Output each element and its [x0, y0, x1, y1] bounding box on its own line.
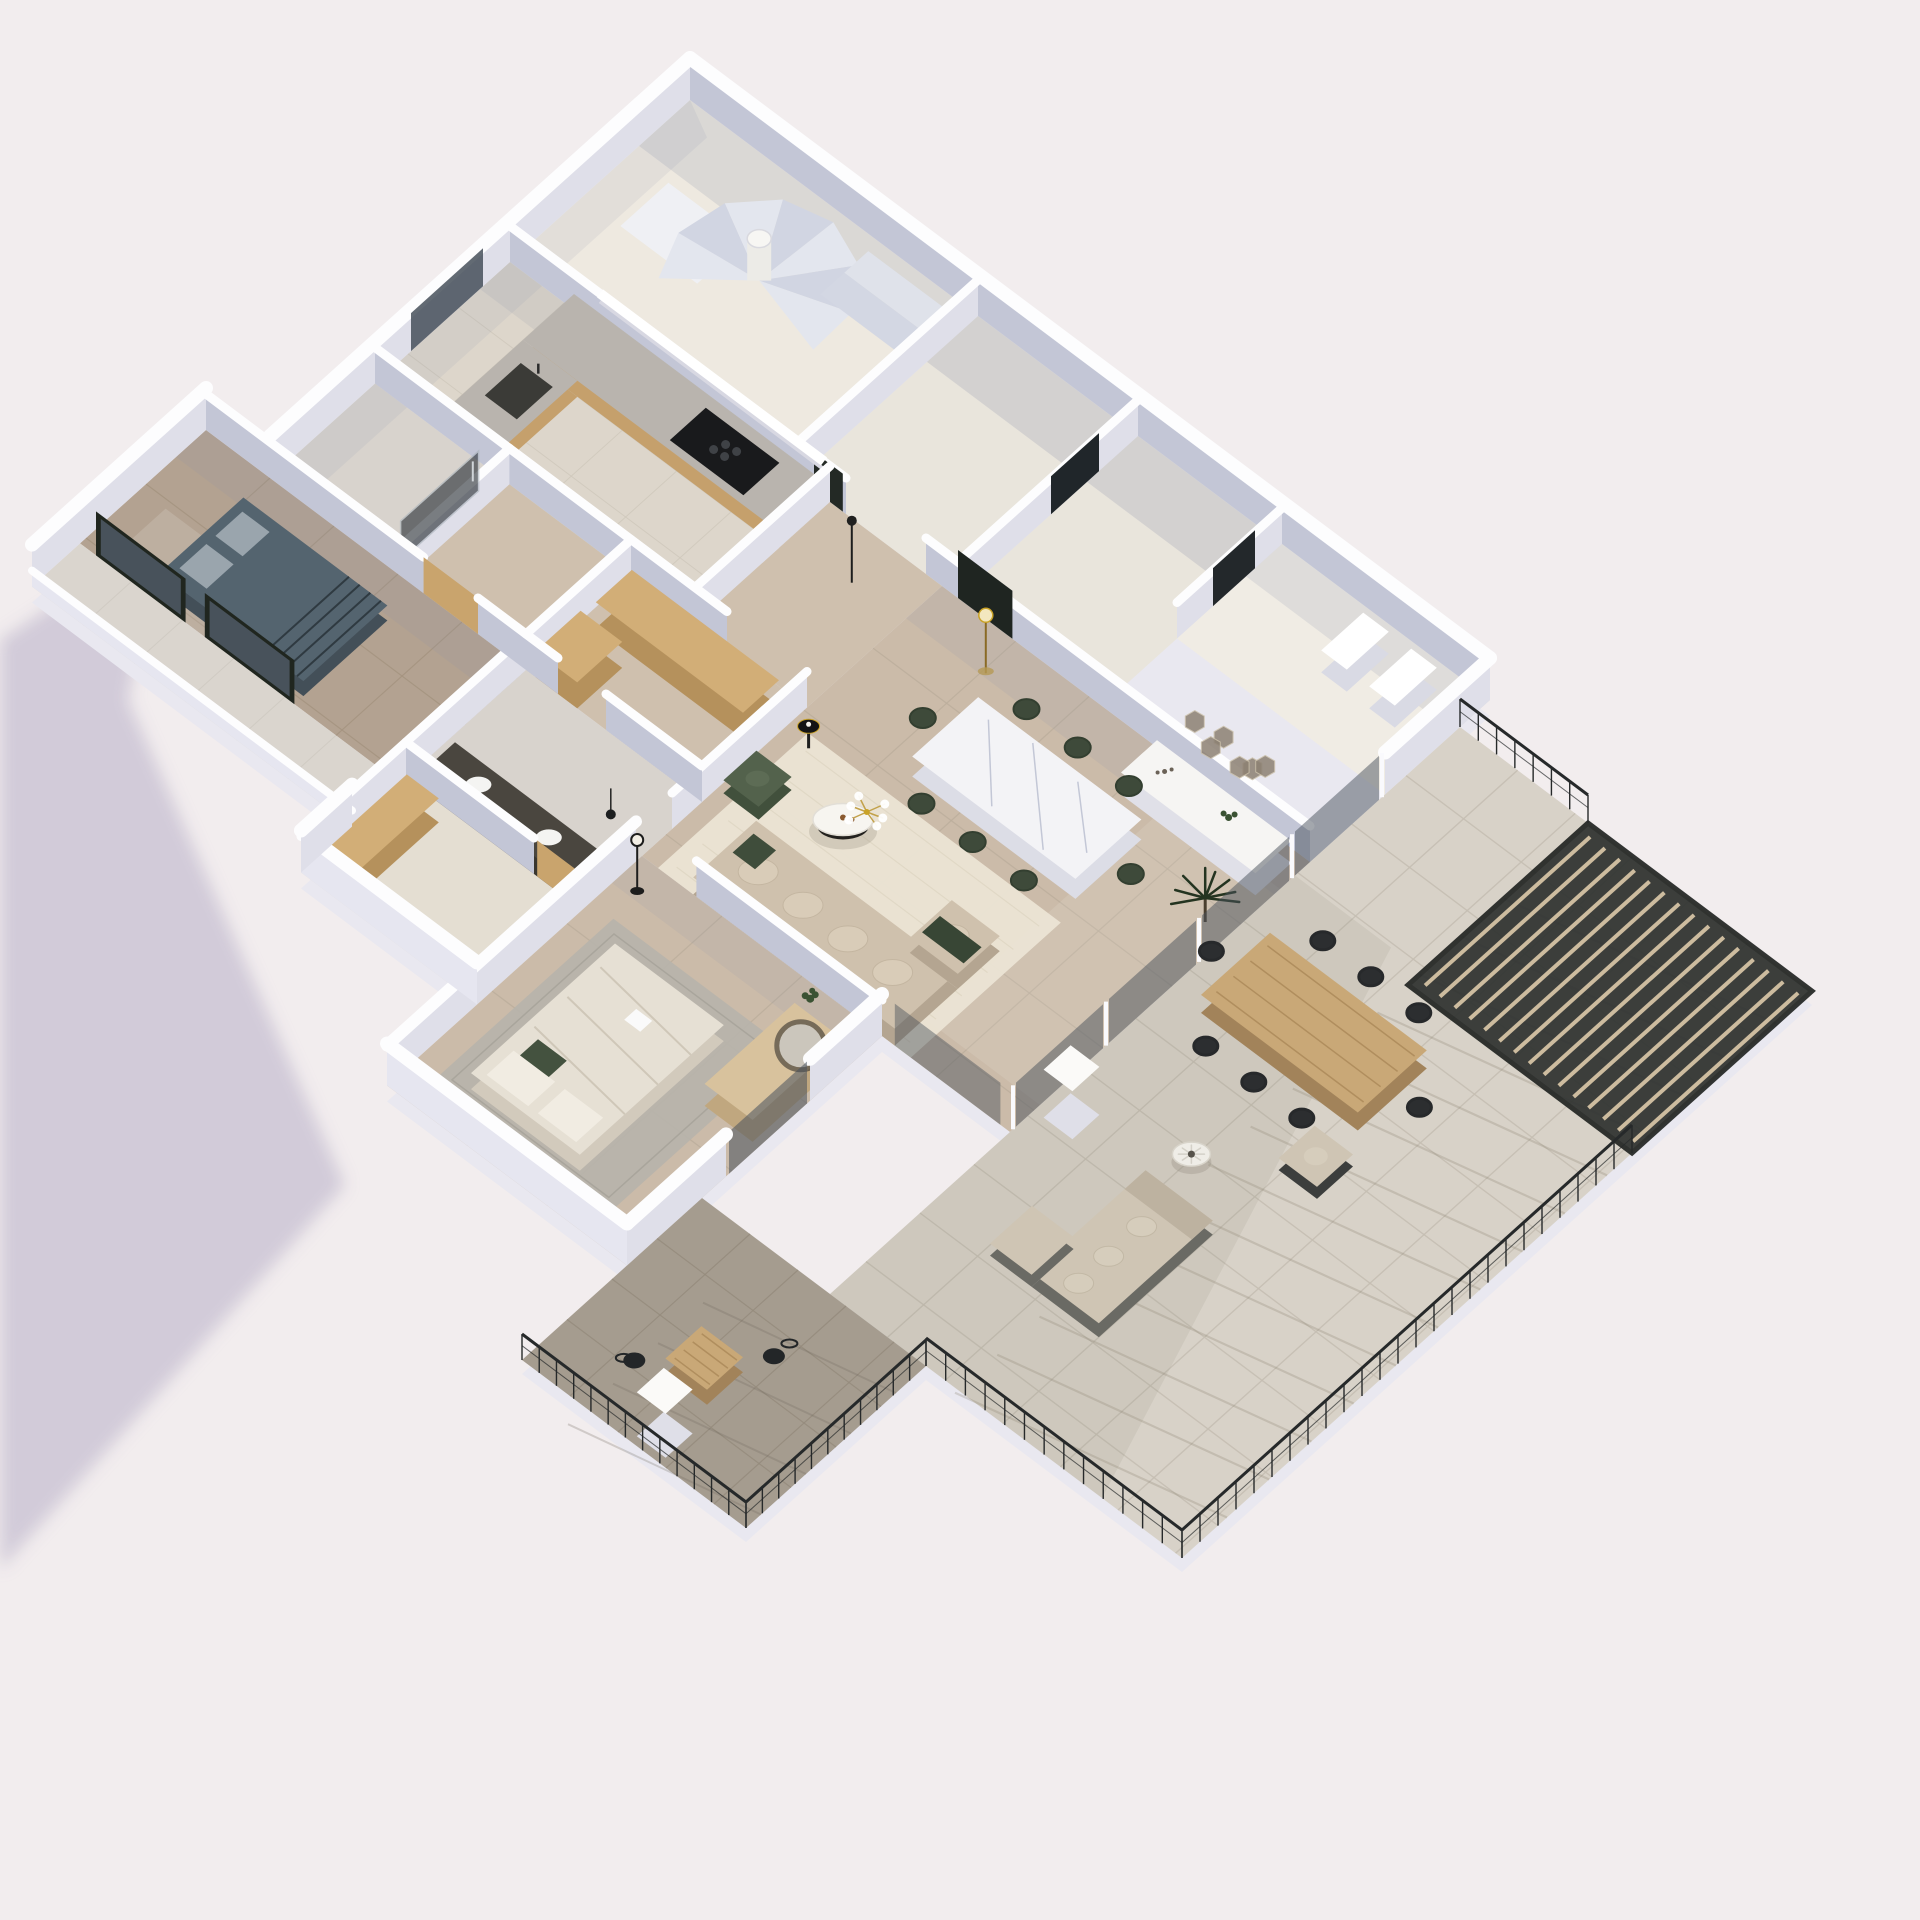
floor-lamp-master-base [630, 887, 644, 895]
sideboard-decor [1162, 769, 1167, 774]
cooktop-burners [709, 445, 718, 454]
dining-chair [1014, 699, 1040, 719]
floor-lamp-gold-base [978, 667, 994, 675]
dining-chair [909, 794, 935, 814]
outdoor-chair [1311, 932, 1335, 950]
sofa-cushion [873, 960, 913, 986]
dining-chair [910, 708, 936, 728]
sideboard-decor [1170, 768, 1174, 772]
cooktop-burners [732, 447, 741, 456]
chandelier-center [864, 809, 870, 815]
chandelier-bulbs [844, 816, 853, 825]
chandelier-bulbs [846, 802, 855, 811]
armchair-green-cushion [746, 771, 770, 787]
outdoor-sofa-cushion [1064, 1273, 1094, 1293]
dining-chair [1118, 864, 1144, 884]
dining-chair [1065, 738, 1091, 758]
sofa-cushion [828, 926, 868, 952]
cooktop-burners [720, 452, 729, 461]
dresser-plant [802, 992, 809, 999]
dresser-plant [809, 988, 815, 994]
outdoor-sofa-cushion [1127, 1217, 1157, 1237]
sofa-cushion [783, 892, 823, 918]
vanity-pendant [606, 809, 616, 819]
chandelier-bulbs [872, 822, 881, 831]
sideboard-plant [1221, 811, 1227, 817]
outdoor-chair [1199, 942, 1223, 960]
cooktop-burners [721, 440, 730, 449]
floor-lamp-master-head [631, 834, 643, 846]
page: { "scene": { "type": "3d-floor-plan-axon… [0, 0, 1920, 1920]
terrace-round-table-center [1188, 1151, 1195, 1158]
hex-mirror [1256, 755, 1275, 777]
sideboard-plant [1232, 812, 1238, 818]
hex-mirror [1230, 756, 1249, 778]
floor-lamp-black-head [847, 516, 857, 526]
floor-lamp-gold-head [979, 608, 993, 622]
outdoor-chair [1407, 1004, 1431, 1022]
bistro-chair [763, 1348, 785, 1364]
outdoor-chair [1242, 1073, 1266, 1091]
dining-chair [960, 832, 986, 852]
outdoor-chair [1290, 1109, 1314, 1127]
outdoor-sofa-cushion [1094, 1246, 1124, 1266]
side-table-decor [806, 722, 811, 727]
chandelier-bulbs [878, 814, 887, 823]
dining-chair [1116, 776, 1142, 796]
outdoor-chair [1407, 1098, 1431, 1116]
outdoor-chair [1194, 1037, 1218, 1055]
sideboard-decor [1156, 771, 1160, 775]
hex-mirror [1201, 737, 1220, 759]
floor-plan-svg [0, 0, 1920, 1920]
hex-mirror [1185, 711, 1204, 733]
outdoor-chair [1359, 968, 1383, 986]
chandelier-bulbs [854, 792, 863, 801]
floor-plan-stage [0, 0, 1920, 1920]
outdoor-armchair-cushion [1304, 1147, 1328, 1165]
dining-chair [1011, 870, 1037, 890]
stair-column-top [747, 230, 771, 248]
chandelier-bulbs [880, 800, 889, 809]
